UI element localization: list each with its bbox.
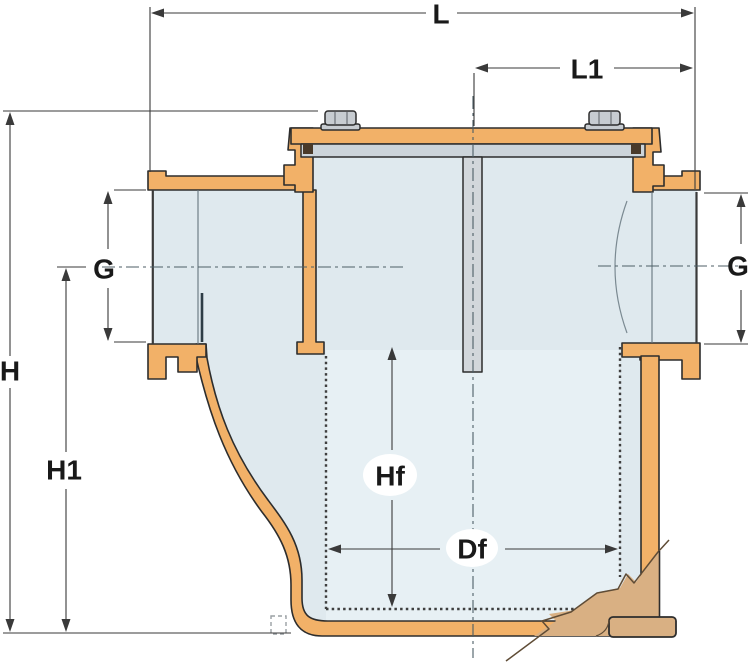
inlet-pipe-bottom-wall [148,344,206,379]
dim-label-G-left: G [93,254,115,285]
lid-bolt-left [321,111,360,130]
drain-plug-hidden [271,616,286,634]
dim-label-H: H [0,356,20,387]
dimension-G-right: G [704,193,748,344]
dimension-L1: L1 [474,54,693,127]
strainer-cross-section-diagram: L L1 G G H [0,0,748,668]
dimension-H1: H1 [46,267,86,632]
mounting-foot [609,617,676,637]
dim-label-Df: Df [457,534,487,565]
strainer-interior [153,157,697,620]
lid-bolt-right [585,111,624,130]
dim-label-Hf: Hf [375,461,405,492]
dim-label-H1: H1 [46,455,82,486]
inlet-pipe-top-wall [148,171,305,190]
dim-label-L: L [432,0,449,30]
dim-label-G-right: G [727,251,748,282]
dim-label-L1: L1 [571,54,604,85]
lid-seal-left [303,144,313,154]
lid-seal-right [631,144,641,154]
dimension-G-left: G [93,190,146,342]
